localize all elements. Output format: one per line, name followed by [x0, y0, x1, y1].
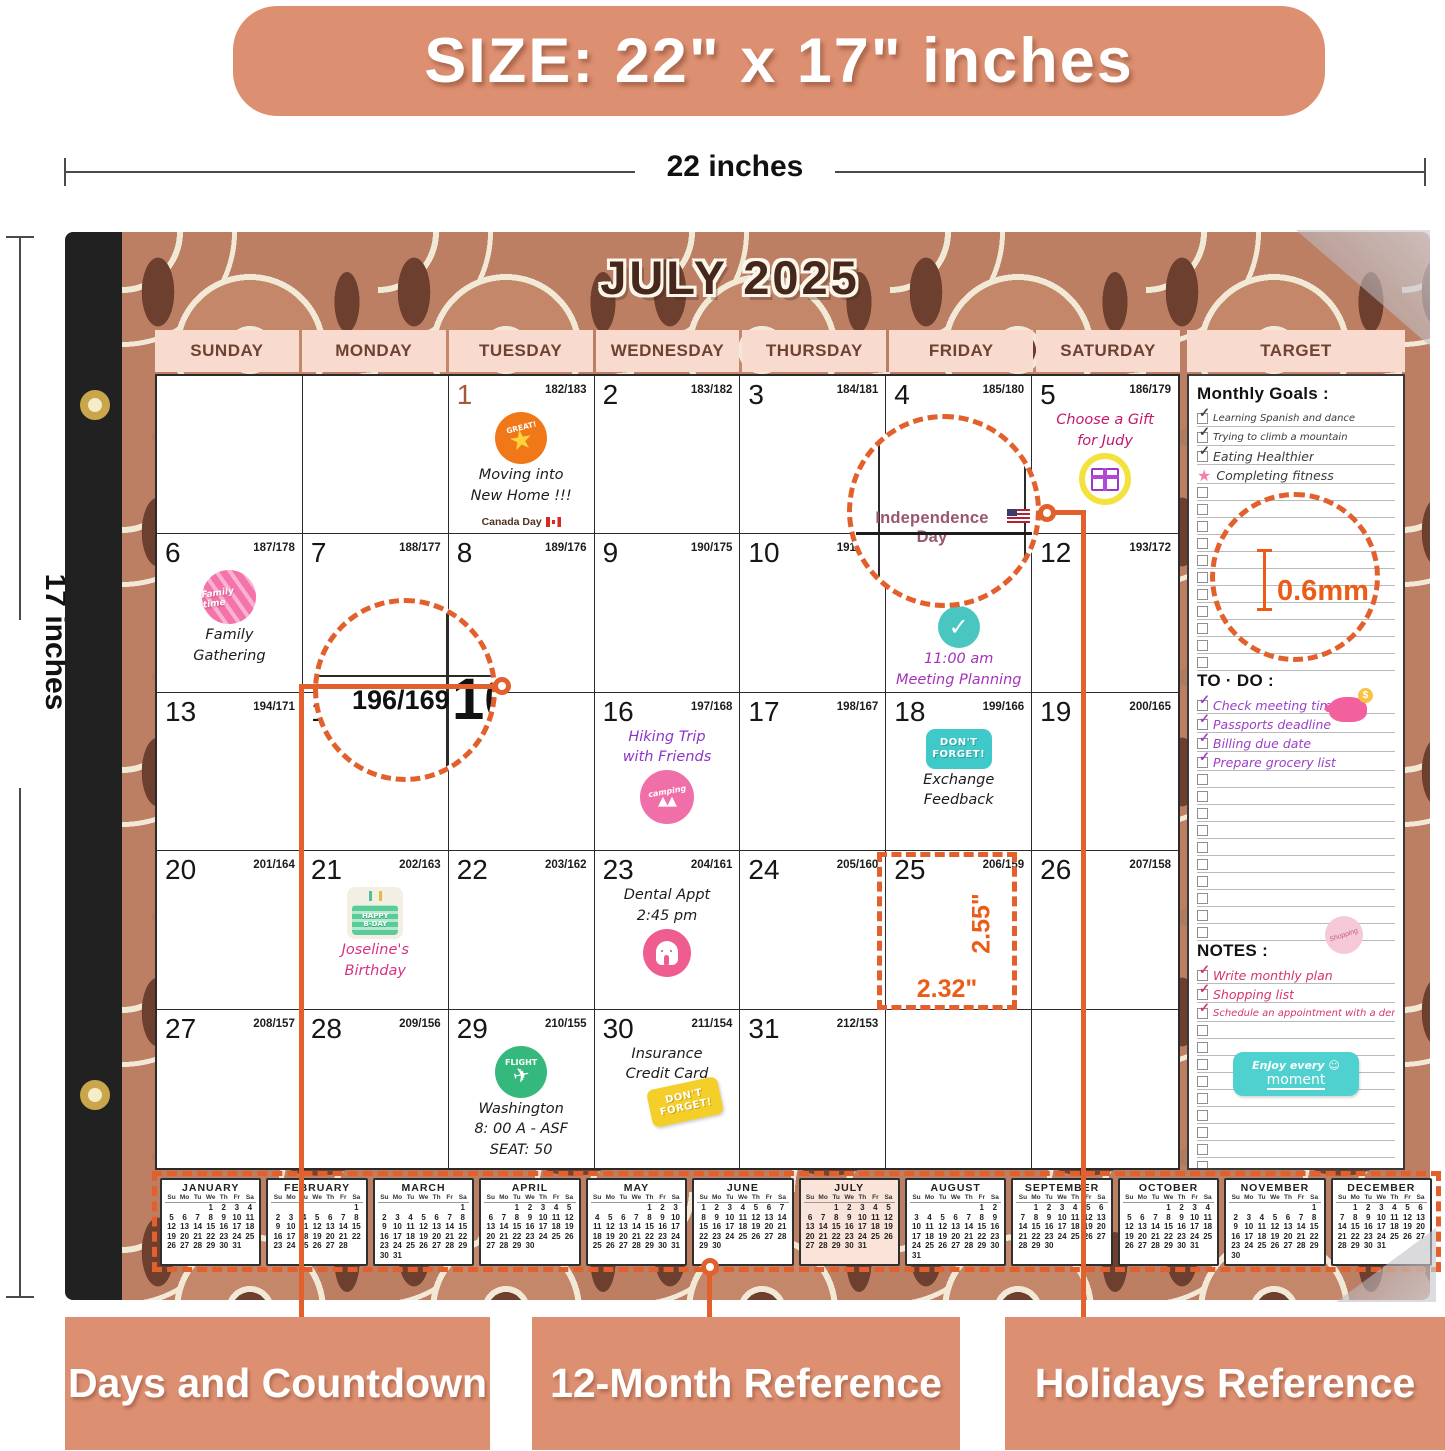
grommet-bottom-icon — [80, 1080, 110, 1110]
countdown-number: 209/156 — [399, 1018, 441, 1030]
checkbox-icon: ✓ — [1197, 413, 1208, 424]
checkbox-icon: ✓ — [1197, 719, 1208, 730]
day-number: 21 — [311, 854, 342, 886]
checkbox-icon — [1197, 791, 1208, 802]
day-number: 20 — [165, 854, 196, 886]
countdown-number: 197/168 — [691, 701, 733, 713]
star-icon: ★ — [507, 426, 535, 456]
countdown-number: 188/177 — [399, 542, 441, 554]
event-text: Feedback — [924, 792, 994, 810]
check-icon: ✓ — [1199, 711, 1210, 727]
day-number: 28 — [311, 1013, 342, 1045]
enjoy-moment-sticker: Enjoy every ☺ moment — [1233, 1052, 1359, 1096]
checklist-item-text: Billing due date — [1213, 737, 1311, 751]
checkbox-icon — [1197, 893, 1208, 904]
check-icon: ✓ — [1199, 405, 1210, 421]
day-cell-2: 2183/182 — [595, 376, 741, 534]
check-icon: ✓ — [1199, 730, 1210, 746]
checklist-item-text: Passports deadline — [1213, 718, 1331, 732]
height-dimension-tick-top — [6, 236, 34, 238]
coin-icon: $ — [1358, 688, 1373, 703]
piggy-bank-sticker-icon: $ — [1329, 688, 1373, 722]
checklist-item-text: Write monthly plan — [1213, 969, 1333, 983]
day-number: 8 — [457, 537, 473, 569]
countdown-number: 203/162 — [545, 859, 587, 871]
day-cell-21: 21202/163HAPPYB-DAYJoseline'sBirthday — [303, 851, 449, 1009]
plane-icon: ✈ — [511, 1064, 532, 1087]
checklist-item-text: Schedule an appointment with a dentist — [1213, 1007, 1395, 1021]
checkbox-icon — [1197, 640, 1208, 651]
event-text: New Home !!! — [471, 488, 572, 506]
gift-icon — [1091, 468, 1119, 491]
day-number: 26 — [1040, 854, 1071, 886]
checkbox-icon — [1197, 1093, 1208, 1104]
callout-label-text: Holidays Reference — [1035, 1360, 1416, 1407]
empty-checklist-row — [1197, 1107, 1395, 1124]
day-cell-empty — [1032, 1010, 1178, 1168]
check-icon: ✓ — [1199, 749, 1210, 765]
tooth-sticker — [643, 929, 691, 977]
day-cell-empty — [886, 1010, 1032, 1168]
callout-label-text: Days and Countdown — [68, 1360, 487, 1407]
checkbox-icon — [1197, 572, 1208, 583]
weekday-header-monday: MONDAY — [302, 330, 446, 372]
weekday-header-tuesday: TUESDAY — [449, 330, 593, 372]
height-dimension-line-top — [19, 237, 21, 620]
cell-measurement-box: 2.55" 2.32" — [877, 852, 1017, 1010]
event-text: with Friends — [623, 749, 712, 767]
checklist-item-text: Shopping list — [1213, 988, 1294, 1002]
checkbox-icon — [1197, 555, 1208, 566]
event-text: Gathering — [193, 648, 265, 666]
checklist-item: ✓Write monthly plan — [1197, 965, 1395, 984]
day-number: 7 — [311, 537, 327, 569]
checklist-item: ★Completing fitness — [1197, 465, 1395, 484]
width-dimension-line-right — [835, 171, 1425, 173]
empty-checklist-row — [1197, 856, 1395, 873]
check-icon: ✓ — [1199, 692, 1210, 708]
cell-content: FLIGHT✈Washington8: 00 A - ASFSEAT: 50 — [449, 1046, 594, 1165]
checklist-item-text: Completing fitness — [1216, 469, 1333, 483]
star-icon: ★ — [1197, 471, 1211, 483]
independence-day-label: Independence Day — [858, 509, 1006, 547]
cell-content: Dental Appt2:45 pm — [595, 887, 740, 1005]
calendar-title: JULY 2025 — [380, 250, 1080, 305]
checklist-item: ✓Prepare grocery list — [1197, 752, 1395, 771]
event-text: Meeting Planning — [896, 672, 1022, 690]
countdown-number: 205/160 — [837, 859, 879, 871]
countdown-number: 185/180 — [983, 384, 1025, 396]
birthday-cake-icon: HAPPYB-DAY — [352, 905, 398, 935]
countdown-number: 201/164 — [253, 859, 295, 871]
day-cell-18: 18199/166DON'TFORGET!ExchangeFeedback — [886, 693, 1032, 851]
day-number: 19 — [1040, 696, 1071, 728]
countdown-number: 183/182 — [691, 384, 733, 396]
countdown-number: 208/157 — [253, 1018, 295, 1030]
checkbox-icon — [1197, 521, 1208, 532]
checkbox-icon: ✓ — [1197, 700, 1208, 711]
checkbox-icon — [1197, 910, 1208, 921]
checklist-item: ✓Learning Spanish and dance — [1197, 408, 1395, 427]
day-cell-29: 29210/155FLIGHT✈Washington8: 00 A - ASFS… — [449, 1010, 595, 1168]
gift-sticker — [1079, 453, 1131, 505]
checkbox-icon — [1197, 825, 1208, 836]
checklist-item-text: Learning Spanish and dance — [1213, 412, 1355, 426]
empty-checklist-row — [1197, 822, 1395, 839]
family-sticker: Family time — [202, 570, 256, 624]
cell-width-label: 2.32" — [882, 975, 1012, 1004]
checkbox-icon — [1197, 1042, 1208, 1053]
checklist-item: ✓Trying to climb a mountain — [1197, 427, 1395, 446]
check-icon: ✓ — [1199, 962, 1210, 978]
day-number: 30 — [603, 1013, 634, 1045]
height-dimension-line-bottom — [19, 788, 21, 1298]
smiley-icon: ☺ — [1328, 1059, 1339, 1072]
checkbox-icon — [1197, 589, 1208, 600]
connector-line — [299, 684, 304, 1317]
checkbox-icon — [1197, 1076, 1208, 1087]
checkbox-icon: ✓ — [1197, 432, 1208, 443]
empty-checklist-row — [1197, 771, 1395, 788]
empty-checklist-row — [1197, 924, 1395, 941]
check-icon: ✓ — [1199, 1000, 1210, 1016]
countdown-number: 187/178 — [253, 542, 295, 554]
cell-content: HAPPYB-DAYJoseline'sBirthday — [303, 887, 448, 1005]
weekday-header-wednesday: WEDNESDAY — [596, 330, 740, 372]
shopping-sticker-label: Shopping — [1329, 927, 1359, 943]
countdown-number: 189/176 — [545, 542, 587, 554]
checkbox-icon: ✓ — [1197, 757, 1208, 768]
empty-checklist-row — [1197, 1141, 1395, 1158]
callout-label-text: 12-Month Reference — [550, 1360, 942, 1407]
tooth-icon — [656, 941, 678, 965]
check-icon: ✓ — [1199, 424, 1210, 440]
checkbox-icon — [1197, 1144, 1208, 1155]
empty-checklist-row — [1197, 1022, 1395, 1039]
target-header: TARGET — [1187, 330, 1405, 372]
countdown-number: 204/161 — [691, 859, 733, 871]
family-time-label: Family time — [201, 584, 257, 611]
cell-content: InsuranceCredit CardDON'TFORGET! — [595, 1046, 740, 1165]
day-cell-empty — [303, 376, 449, 534]
happy-bday-label: HAPPY — [362, 912, 389, 920]
checkbox-icon — [1197, 808, 1208, 819]
cell-content: Hiking Tripwith Friendscamping▲▲ — [595, 729, 740, 847]
day-cell-1: 1182/183GREAT!★Moving intoNew Home !!!Ca… — [449, 376, 595, 534]
day-cell-9: 9190/175 — [595, 534, 741, 692]
cell-content: Family timeFamilyGathering — [157, 570, 302, 688]
day-number: 16 — [603, 696, 634, 728]
checklist-item: ✓Shopping list — [1197, 984, 1395, 1003]
event-text: Dental Appt — [624, 887, 711, 905]
checkbox-icon — [1197, 842, 1208, 853]
cell-height-label: 2.55" — [968, 882, 997, 966]
countdown-number: 184/181 — [837, 384, 879, 396]
event-text: Choose a Gift — [1056, 412, 1154, 430]
event-text: Joseline's — [342, 942, 409, 960]
dont-forget-teal-sticker: DON'TFORGET! — [926, 729, 992, 769]
checklist-item: ✓Eating Healthier — [1197, 446, 1395, 465]
event-text: Moving into — [479, 467, 564, 485]
day-number: 12 — [1040, 537, 1071, 569]
countdown-number: 210/155 — [545, 1018, 587, 1030]
enjoy-sticker-line2: moment — [1267, 1072, 1326, 1090]
empty-checklist-row — [1197, 788, 1395, 805]
day-cell-28: 28209/156 — [303, 1010, 449, 1168]
dont-forget-label: FORGET! — [932, 749, 985, 761]
width-dimension-tick-left — [64, 158, 66, 186]
check-icon: ✓ — [1199, 981, 1210, 997]
event-text: 11:00 am — [924, 651, 993, 669]
day-number: 22 — [457, 854, 488, 886]
day-cell-6: 6187/178Family timeFamilyGathering — [157, 534, 303, 692]
connector-line — [1081, 510, 1086, 1317]
day-cell-26: 26207/158 — [1032, 851, 1178, 1009]
event-text: Insurance — [631, 1046, 702, 1064]
checkbox-icon — [1197, 774, 1208, 785]
section-heading: Monthly Goals : — [1197, 384, 1395, 408]
grommet-top-icon — [80, 390, 110, 420]
day-number: 6 — [165, 537, 181, 569]
empty-checklist-row — [1197, 890, 1395, 907]
holiday-magnifier-circle: Independence Day — [847, 414, 1041, 608]
day-number: 17 — [748, 696, 779, 728]
dont-forget-label: DON'T — [940, 737, 978, 749]
empty-checklist-row — [1197, 1158, 1395, 1170]
checklist-item-text: Trying to climb a mountain — [1213, 431, 1348, 445]
day-cell-empty — [157, 376, 303, 534]
connector-line — [302, 684, 498, 689]
day-number: 27 — [165, 1013, 196, 1045]
checkbox-icon: ✓ — [1197, 989, 1208, 1000]
day-number: 18 — [894, 696, 925, 728]
holiday-underline — [856, 532, 1032, 535]
checklist-item-text: Prepare grocery list — [1213, 756, 1336, 770]
day-cell-19: 19200/165 — [1032, 693, 1178, 851]
day-number: 24 — [748, 854, 779, 886]
day-number: 9 — [603, 537, 619, 569]
countdown-number: 207/158 — [1129, 859, 1171, 871]
event-text: 8: 00 A - ASF — [474, 1121, 568, 1139]
happy-bday-label: B-DAY — [363, 920, 387, 928]
checkbox-icon: ✓ — [1197, 738, 1208, 749]
day-number: 31 — [748, 1013, 779, 1045]
callout-days-countdown: Days and Countdown — [65, 1317, 490, 1450]
countdown-number: 198/167 — [837, 701, 879, 713]
checkbox-icon — [1197, 538, 1208, 549]
callout-holidays-reference: Holidays Reference — [1005, 1317, 1445, 1450]
width-dimension-label: 22 inches — [635, 150, 835, 184]
countdown-number: 186/179 — [1129, 384, 1171, 396]
countdown-number: 211/154 — [691, 1018, 732, 1030]
checkbox-icon — [1197, 876, 1208, 887]
checkbox-icon — [1197, 1110, 1208, 1121]
day-cell-31: 31212/153 — [740, 1010, 886, 1168]
event-text: Exchange — [923, 772, 994, 790]
empty-checklist-row — [1197, 907, 1395, 924]
shopping-sticker-icon: Shopping — [1325, 916, 1363, 954]
event-text: Washington — [478, 1101, 563, 1119]
checkbox-icon: ✓ — [1197, 1008, 1208, 1019]
thickness-measure-icon — [1263, 549, 1266, 611]
product-screenshot: SIZE: 22" x 17" inches 22 inches 17 inch… — [0, 0, 1445, 1451]
checkbox-icon — [1197, 1025, 1208, 1036]
size-banner: SIZE: 22" x 17" inches — [233, 6, 1325, 116]
event-text: SEAT: 50 — [490, 1142, 553, 1160]
checkbox-icon: ✓ — [1197, 970, 1208, 981]
event-text: Birthday — [345, 963, 406, 981]
us-flag-icon — [1007, 509, 1030, 523]
cell-content: GREAT!★Moving intoNew Home !!! — [449, 412, 594, 530]
thickness-label: 0.6mm — [1277, 575, 1369, 608]
flight-sticker: FLIGHT✈ — [495, 1046, 547, 1098]
empty-checklist-row — [1197, 805, 1395, 822]
checkbox-icon — [1197, 859, 1208, 870]
checkbox-icon — [1197, 504, 1208, 515]
countdown-number: 199/166 — [983, 701, 1025, 713]
mini-strip-highlight-box — [152, 1171, 1441, 1272]
checkbox-icon — [1197, 606, 1208, 617]
checkbox-icon — [1197, 927, 1208, 938]
day-cell-12: 12193/172 — [1032, 534, 1178, 692]
empty-checklist-row — [1197, 839, 1395, 856]
connector-line — [707, 1274, 712, 1317]
day-cell-13: 13194/171 — [157, 693, 303, 851]
check-icon: ✓ — [949, 613, 969, 641]
magnified-day-number: 16 — [452, 671, 497, 729]
countdown-magnifier-circle: 196/169 16 169 — [313, 598, 497, 782]
day-cell-24: 24205/160 — [740, 851, 886, 1009]
countdown-number: 212/153 — [837, 1018, 879, 1030]
camping-sticker: camping▲▲ — [640, 770, 694, 824]
countdown-number: 194/171 — [253, 701, 295, 713]
day-cell-17: 17198/167 — [740, 693, 886, 851]
day-number: 13 — [165, 696, 196, 728]
day-cell-23: 23204/161Dental Appt2:45 pm — [595, 851, 741, 1009]
checkbox-icon — [1197, 1161, 1208, 1170]
checklist-item: ✓Billing due date — [1197, 733, 1395, 752]
day-cell-27: 27208/157 — [157, 1010, 303, 1168]
day-cell-30: 30211/154InsuranceCredit CardDON'TFORGET… — [595, 1010, 741, 1168]
weekday-header-row: SUNDAYMONDAYTUESDAYWEDNESDAYTHURSDAYFRID… — [155, 330, 1180, 372]
day-cell-16: 16197/168Hiking Tripwith Friendscamping▲… — [595, 693, 741, 851]
checkbox-icon: ✓ — [1197, 451, 1208, 462]
day-number: 10 — [748, 537, 779, 569]
section-heading: NOTES : — [1197, 941, 1395, 965]
holiday-row: Canada Day — [449, 516, 594, 528]
weekday-header-sunday: SUNDAY — [155, 330, 299, 372]
checklist-item-text: Eating Healthier — [1213, 450, 1314, 464]
checklist-item-text: Check meeting time — [1213, 699, 1339, 713]
callout-12-month-reference: 12-Month Reference — [532, 1317, 960, 1450]
magnified-countdown: 196/169 — [352, 685, 450, 716]
checkbox-icon — [1197, 1059, 1208, 1070]
thickness-magnifier-circle: 0.6mm — [1210, 492, 1380, 662]
cell-content: ✓11:00 amMeeting Planning — [886, 606, 1031, 688]
checklist-item: ✓Schedule an appointment with a dentist — [1197, 1003, 1395, 1022]
size-banner-text: SIZE: 22" x 17" inches — [424, 25, 1134, 97]
event-text: 2:45 pm — [637, 908, 698, 926]
canada-flag-icon — [546, 517, 561, 527]
weekday-header-saturday: SATURDAY — [1036, 330, 1180, 372]
day-number: 3 — [748, 379, 764, 411]
event-text: Family — [205, 627, 253, 645]
checkbox-icon — [1197, 487, 1208, 498]
day-cell-20: 20201/164 — [157, 851, 303, 1009]
height-dimension-tick-bottom — [6, 1296, 34, 1298]
event-text: for Judy — [1077, 433, 1133, 451]
day-number: 4 — [894, 379, 910, 411]
countdown-number: 182/183 — [545, 384, 587, 396]
great-sticker: GREAT!★ — [495, 412, 547, 464]
cell-content: DON'TFORGET!ExchangeFeedback — [886, 729, 1031, 847]
bday-sticker: HAPPYB-DAY — [347, 887, 403, 939]
countdown-number: 200/165 — [1129, 701, 1171, 713]
day-number: 1 — [457, 379, 473, 411]
empty-checklist-row — [1197, 873, 1395, 890]
countdown-number: 193/172 — [1129, 542, 1171, 554]
event-text: Hiking Trip — [628, 729, 705, 747]
checkbox-icon — [1197, 657, 1208, 668]
check-sticker: ✓ — [938, 606, 980, 648]
weekday-header-thursday: THURSDAY — [742, 330, 886, 372]
day-number: 2 — [603, 379, 619, 411]
day-cell-22: 22203/162 — [449, 851, 595, 1009]
enjoy-sticker-line1: Enjoy every ☺ — [1252, 1059, 1340, 1072]
checkbox-icon — [1197, 623, 1208, 634]
countdown-number: 190/175 — [691, 542, 733, 554]
day-number: 5 — [1040, 379, 1056, 411]
day-number: 23 — [603, 854, 634, 886]
checkbox-icon — [1197, 1127, 1208, 1138]
width-dimension-line-left — [65, 171, 635, 173]
day-number: 29 — [457, 1013, 488, 1045]
empty-checklist-row — [1197, 1124, 1395, 1141]
width-dimension-tick-right — [1424, 158, 1426, 186]
countdown-number: 202/163 — [399, 859, 441, 871]
holiday-label: Canada Day — [482, 516, 542, 528]
weekday-header-friday: FRIDAY — [889, 330, 1033, 372]
check-icon: ✓ — [1199, 443, 1210, 459]
